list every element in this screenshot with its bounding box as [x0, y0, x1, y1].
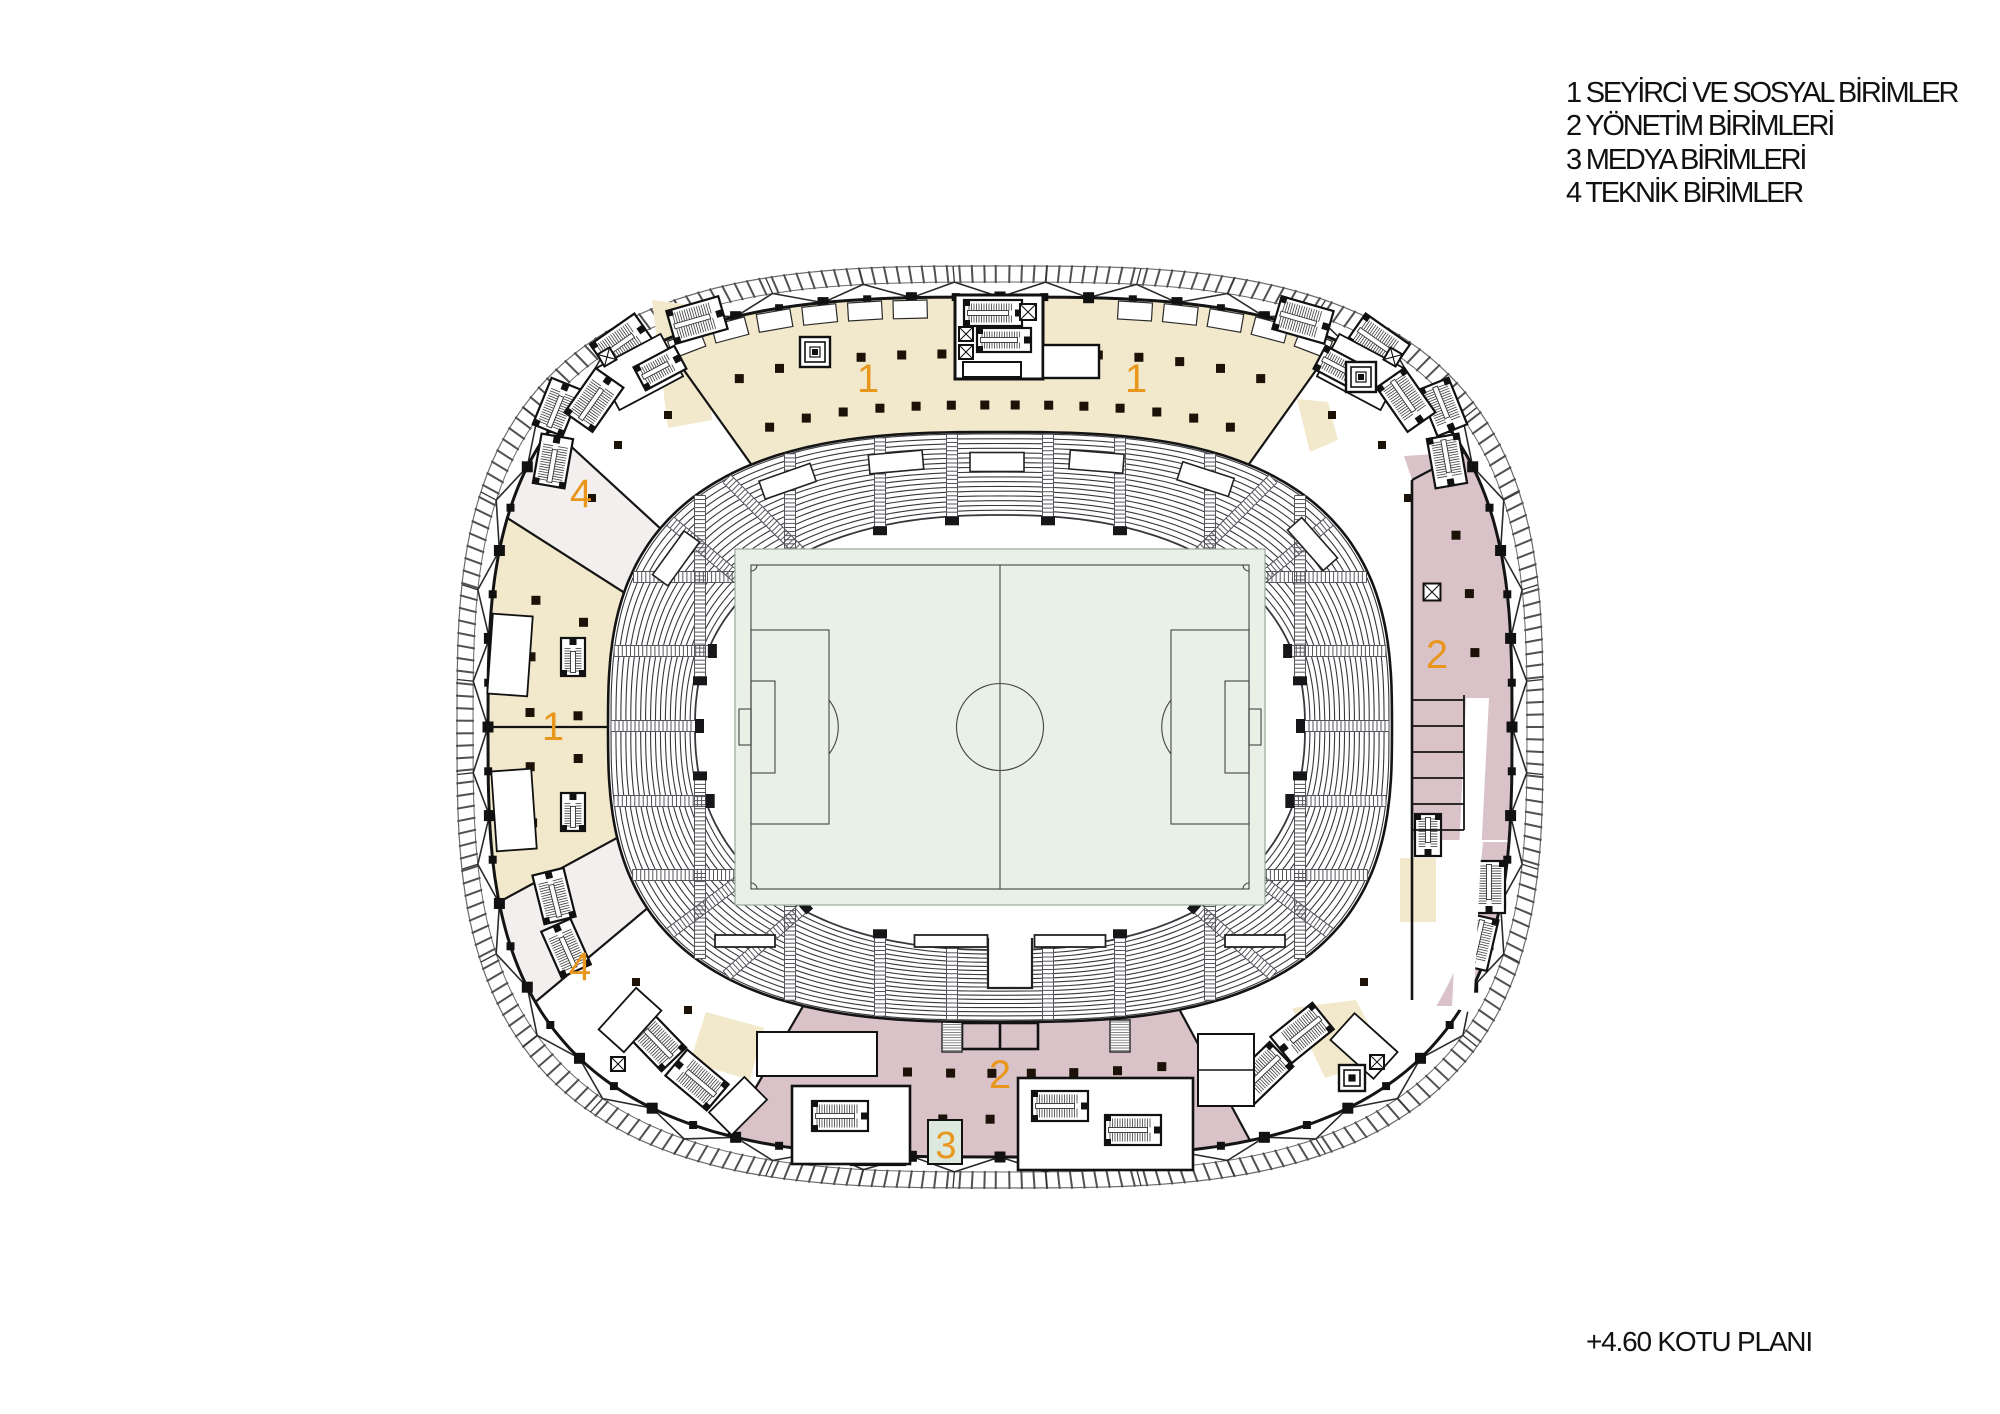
svg-text:4: 4 — [570, 472, 592, 516]
svg-text:2: 2 — [989, 1053, 1011, 1097]
svg-text:2: 2 — [1426, 633, 1448, 677]
svg-text:4: 4 — [569, 945, 591, 989]
svg-text:1: 1 — [542, 705, 564, 749]
svg-text:3: 3 — [935, 1125, 956, 1167]
svg-text:1: 1 — [1125, 357, 1147, 401]
svg-text:1: 1 — [857, 357, 879, 401]
